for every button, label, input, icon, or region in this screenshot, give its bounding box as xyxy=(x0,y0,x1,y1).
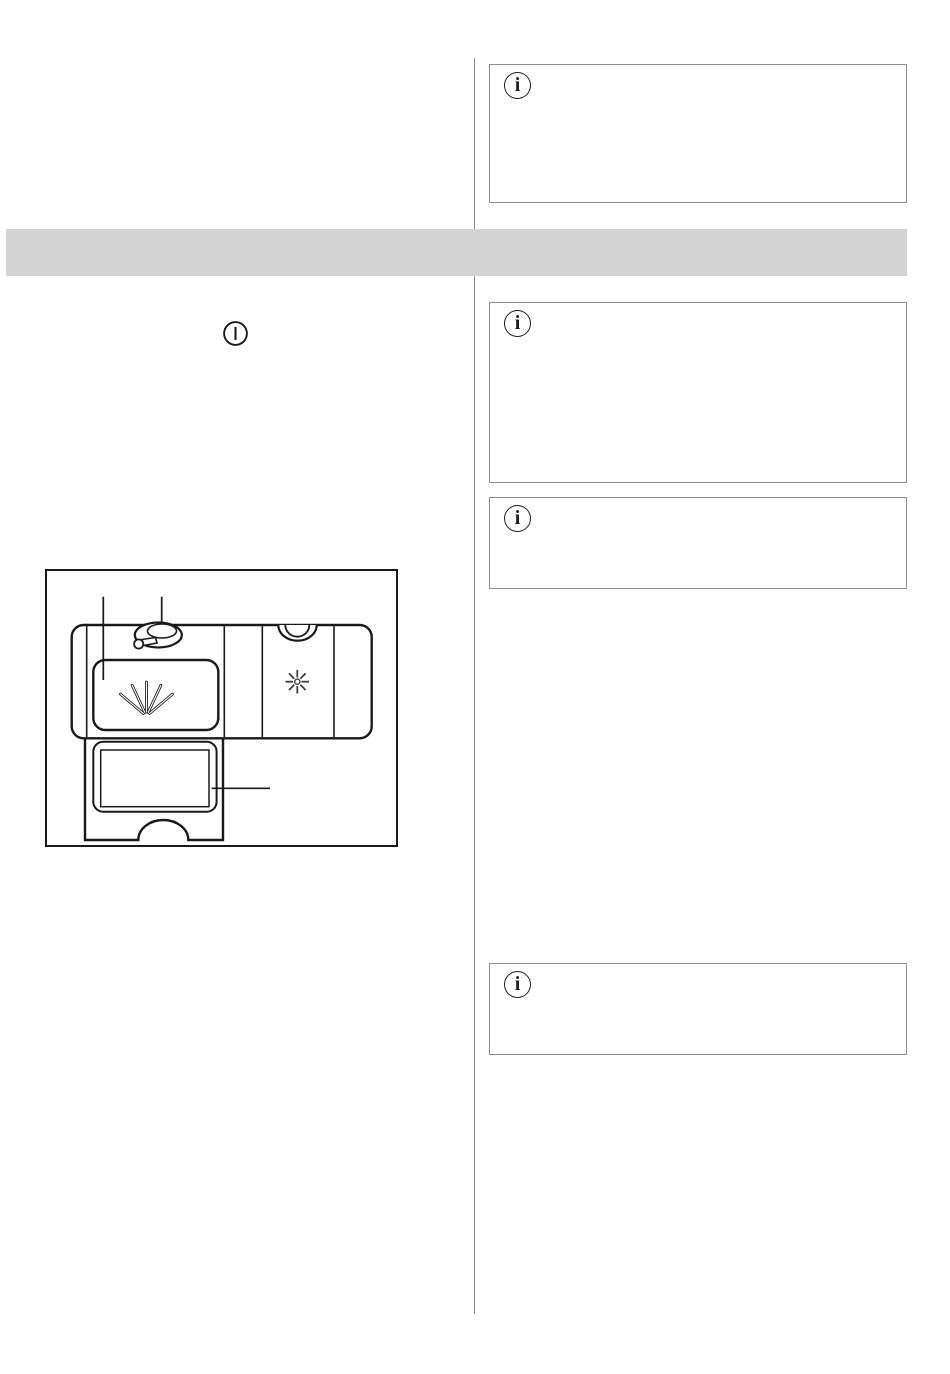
rinse-aid-star-icon xyxy=(286,670,310,694)
rinse-aid-cap xyxy=(134,623,182,649)
manual-page: i i i i xyxy=(0,0,950,1374)
detergent-compartment-outline xyxy=(85,732,223,840)
info-note-box-right-upper: i xyxy=(489,302,907,483)
power-on-icon xyxy=(222,320,249,347)
detergent-dispenser-diagram xyxy=(45,569,398,847)
info-note-box-right-middle: i xyxy=(489,497,907,589)
info-note-box-top-right: i xyxy=(489,64,907,203)
info-icon: i xyxy=(504,310,531,337)
info-icon-glyph: i xyxy=(515,313,521,333)
info-note-box-right-lower: i xyxy=(489,963,907,1055)
info-icon: i xyxy=(504,971,531,998)
info-icon-glyph: i xyxy=(515,508,521,528)
info-icon-glyph: i xyxy=(515,974,521,994)
info-icon: i xyxy=(504,505,531,532)
section-header-band xyxy=(6,229,907,276)
info-icon: i xyxy=(504,72,531,99)
info-icon-glyph: i xyxy=(515,75,521,95)
